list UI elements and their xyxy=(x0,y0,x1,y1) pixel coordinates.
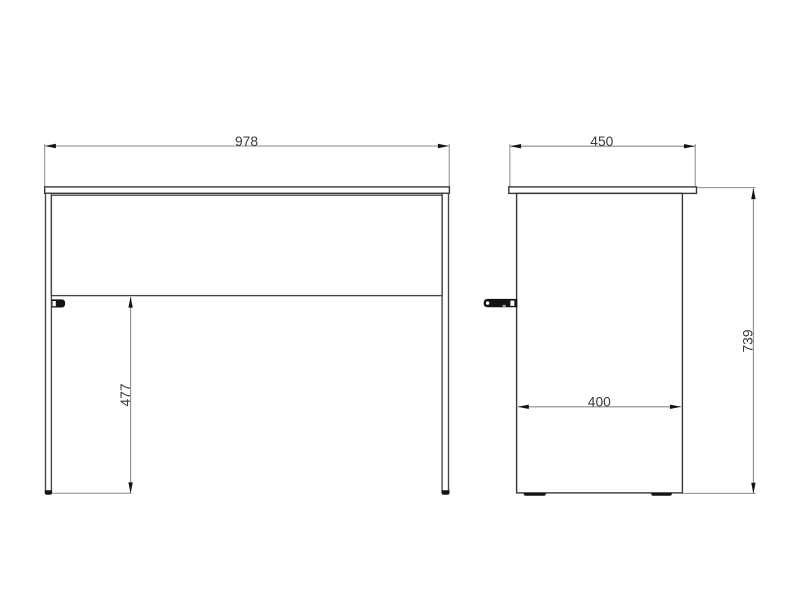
svg-text:450: 450 xyxy=(590,134,613,149)
svg-text:400: 400 xyxy=(588,395,611,410)
svg-text:978: 978 xyxy=(235,134,258,149)
svg-text:477: 477 xyxy=(118,383,133,406)
svg-text:739: 739 xyxy=(740,329,755,352)
